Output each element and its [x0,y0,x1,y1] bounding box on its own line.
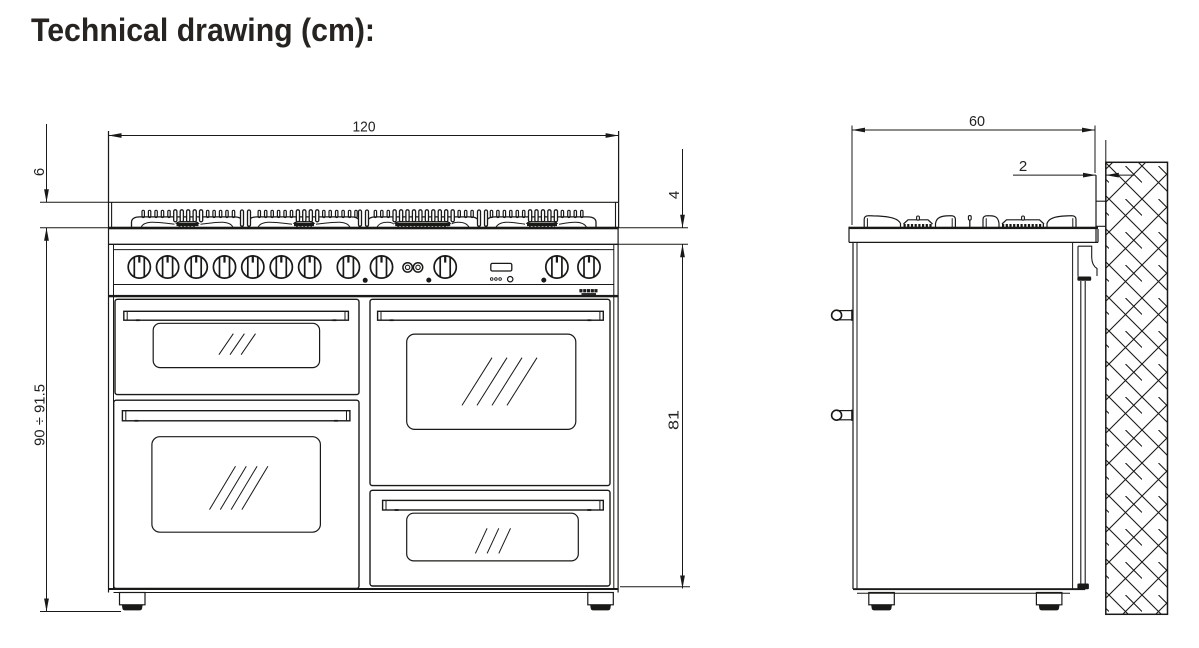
svg-text:2: 2 [1019,158,1027,175]
svg-text:60: 60 [969,113,985,130]
svg-text:Technical drawing (cm):: Technical drawing (cm): [31,12,375,48]
svg-text:90 ÷ 91.5: 90 ÷ 91.5 [32,384,49,446]
svg-text:6: 6 [31,168,48,176]
svg-text:4: 4 [666,191,683,199]
svg-text:81: 81 [666,410,683,430]
svg-text:120: 120 [353,118,376,135]
